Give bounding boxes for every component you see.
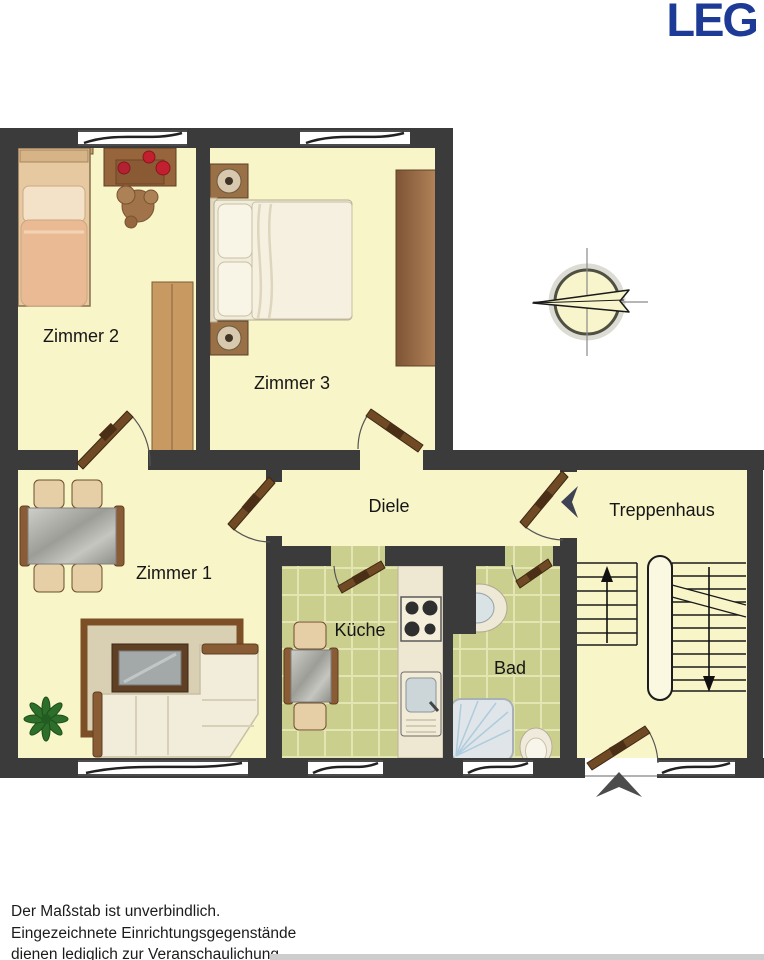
pillow bbox=[218, 204, 252, 258]
disclaimer-line: dienen lediglich zur Veranschaulichung. bbox=[11, 944, 296, 960]
burner bbox=[425, 624, 436, 635]
pillow bbox=[218, 262, 252, 316]
window-bad bbox=[463, 760, 533, 776]
lamp-center bbox=[225, 334, 233, 342]
compass-icon bbox=[533, 248, 648, 356]
window-zimmer1 bbox=[78, 760, 248, 776]
burner bbox=[405, 622, 420, 637]
disclaimer-line: Der Maßstab ist unverbindlich. bbox=[11, 901, 296, 923]
room-label-kueche: Küche bbox=[334, 620, 385, 640]
stairwell-core bbox=[648, 556, 672, 700]
room-label-bad: Bad bbox=[494, 658, 526, 678]
bed-headboard bbox=[20, 150, 88, 162]
dining-table bbox=[28, 508, 116, 564]
room-label-diele: Diele bbox=[368, 496, 409, 516]
wall-shaft bbox=[443, 546, 476, 634]
chair bbox=[34, 480, 64, 508]
desk-item-red bbox=[143, 151, 155, 163]
wall-right bbox=[747, 450, 763, 778]
disclaimer-text: Der Maßstab ist unverbindlich. Eingezeic… bbox=[11, 901, 296, 960]
leg-logo: LEG bbox=[666, 0, 757, 47]
duvet bbox=[252, 202, 352, 319]
bed-pillow bbox=[23, 186, 85, 222]
room-label-zimmer1: Zimmer 1 bbox=[136, 563, 212, 583]
sink-basin bbox=[406, 678, 436, 712]
desk-item-red bbox=[156, 161, 170, 175]
room-label-treppenhaus: Treppenhaus bbox=[609, 500, 714, 520]
room-label-zimmer3: Zimmer 3 bbox=[254, 373, 330, 393]
wall-z3-right bbox=[435, 128, 453, 470]
chair bbox=[34, 564, 64, 592]
desk-item-red bbox=[118, 162, 130, 174]
room-label-zimmer2: Zimmer 2 bbox=[43, 326, 119, 346]
window-kueche bbox=[308, 760, 383, 776]
sofa-armrest bbox=[202, 644, 258, 654]
chair bbox=[294, 622, 326, 649]
window-treppenhaus bbox=[657, 760, 735, 776]
kitchen-table bbox=[291, 650, 331, 702]
chair bbox=[72, 564, 102, 592]
wall-z2-z3 bbox=[196, 128, 210, 450]
burner bbox=[423, 601, 438, 616]
burner bbox=[406, 602, 419, 615]
door-opening-z3 bbox=[360, 450, 423, 470]
sofa-armrest bbox=[93, 692, 102, 757]
window-zimmer3 bbox=[300, 130, 410, 146]
plant bbox=[24, 697, 68, 741]
disclaimer-line: Eingezeichnete Einrichtungsgegenstände bbox=[11, 923, 296, 945]
chair bbox=[72, 480, 102, 508]
window-zimmer2 bbox=[78, 130, 187, 146]
floorplan-canvas: LEG bbox=[0, 0, 764, 960]
wardrobe bbox=[396, 170, 438, 366]
bottom-gray-bar bbox=[270, 954, 764, 960]
chair bbox=[294, 703, 326, 730]
lamp-center bbox=[225, 177, 233, 185]
floorplan-drawing: Zimmer 2 Zimmer 3 Zimmer 1 Diele Küche B… bbox=[0, 0, 764, 960]
